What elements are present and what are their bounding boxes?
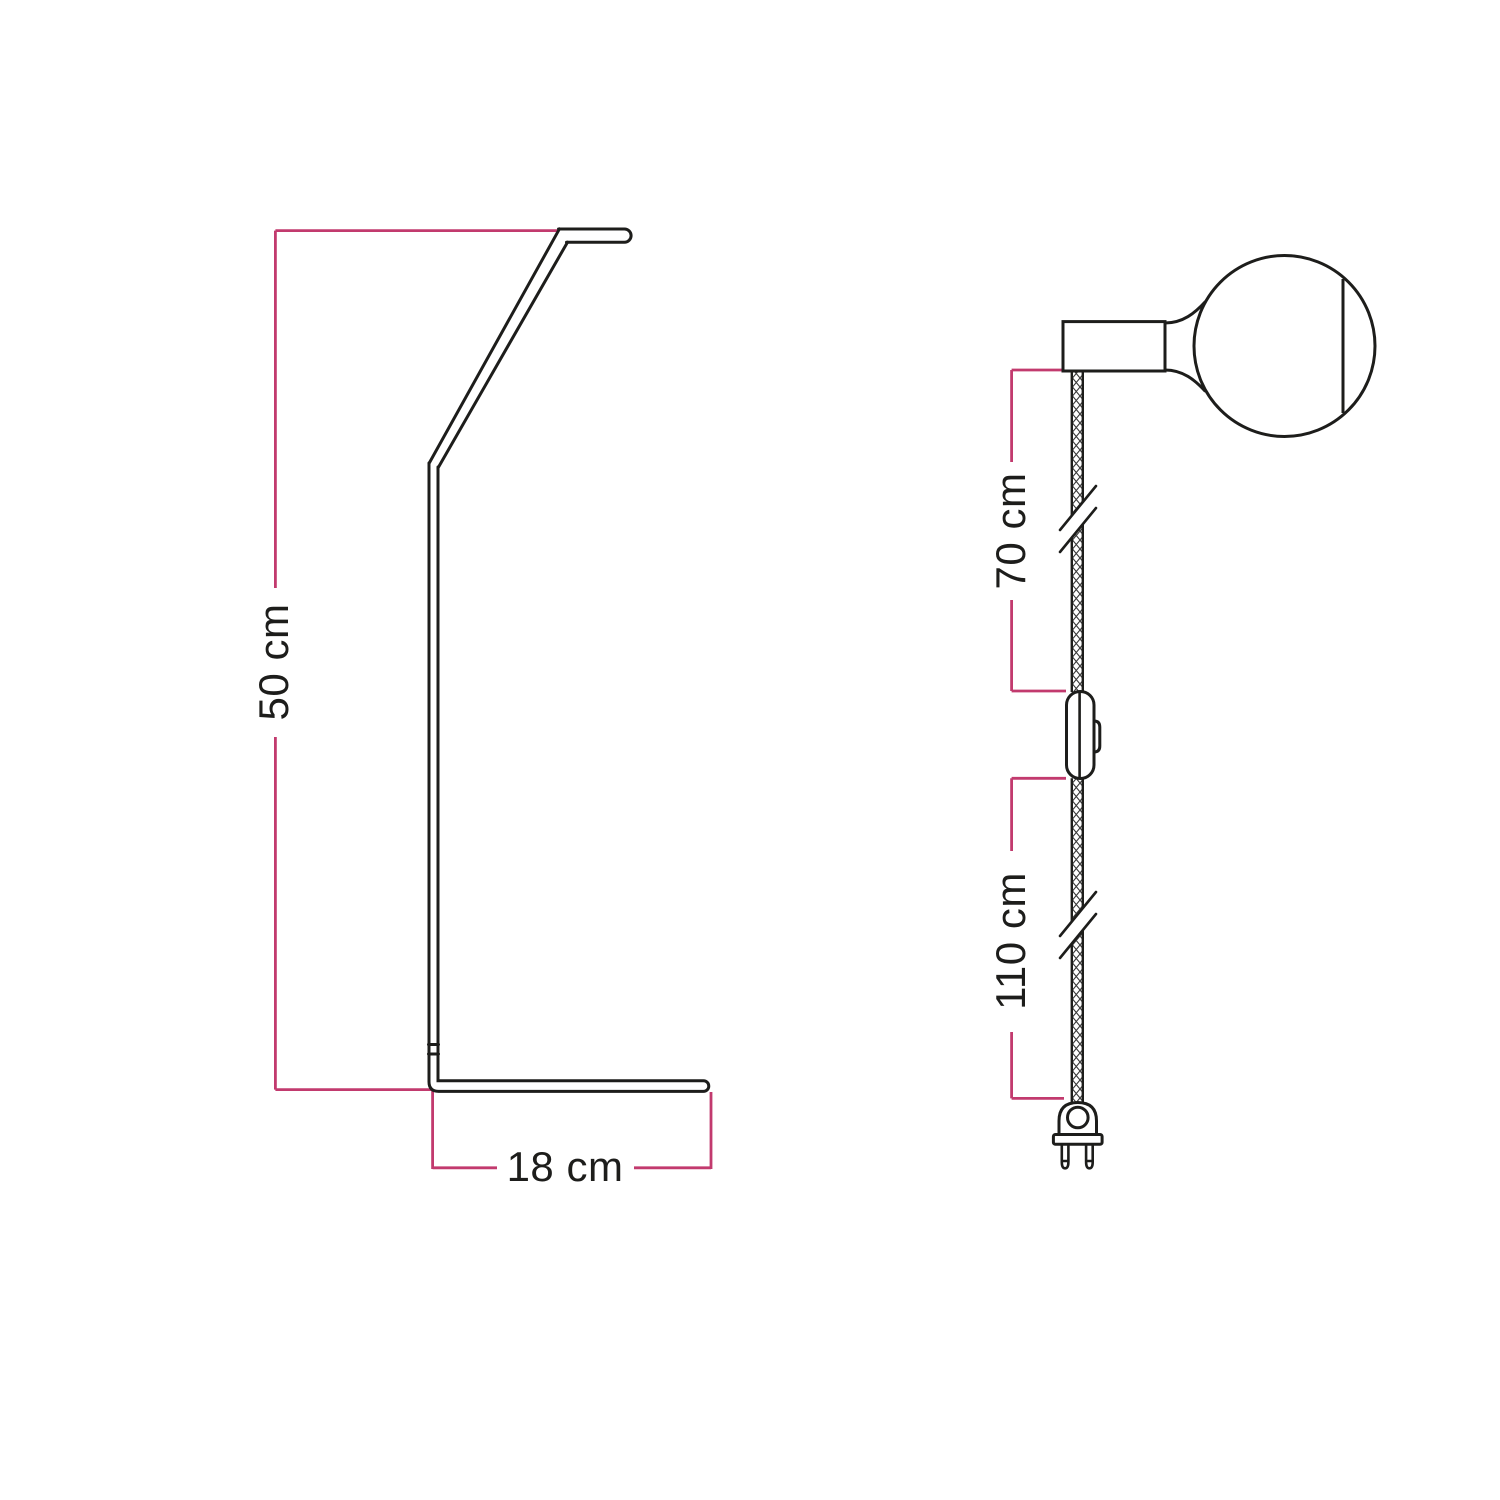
braided-cable-lower <box>1060 778 1096 1105</box>
stand-height-dimension-label: 50 cm <box>253 604 295 721</box>
stand-pole-and-base <box>429 463 709 1091</box>
upper-cable-length-dimension-label: 70 cm <box>990 473 1032 590</box>
stand-profile <box>429 229 709 1092</box>
globe-bulb <box>1165 256 1375 437</box>
bulb-globe-outline <box>1194 256 1375 437</box>
inline-switch <box>1067 692 1100 779</box>
diagram-drawing <box>0 0 1500 1500</box>
stand-base-width-dimension-label: 18 cm <box>507 1146 624 1188</box>
dimension-diagram: 50 cm 18 cm 70 cm 110 cm <box>0 0 1500 1500</box>
stand-top-arm <box>559 229 632 242</box>
stand-diagonal-inner <box>438 242 568 468</box>
lamp-holder <box>1063 322 1165 371</box>
power-plug <box>1053 1103 1102 1169</box>
plug-prong-left <box>1062 1144 1069 1168</box>
stand-diagonal-outer <box>429 229 560 464</box>
plug-cable-ring <box>1068 1107 1089 1128</box>
lower-cable-length-dimension-label: 110 cm <box>990 872 1032 1010</box>
braided-cable-upper <box>1060 370 1096 692</box>
plug-prong-right <box>1086 1144 1093 1168</box>
plug-face-plate <box>1053 1135 1102 1145</box>
